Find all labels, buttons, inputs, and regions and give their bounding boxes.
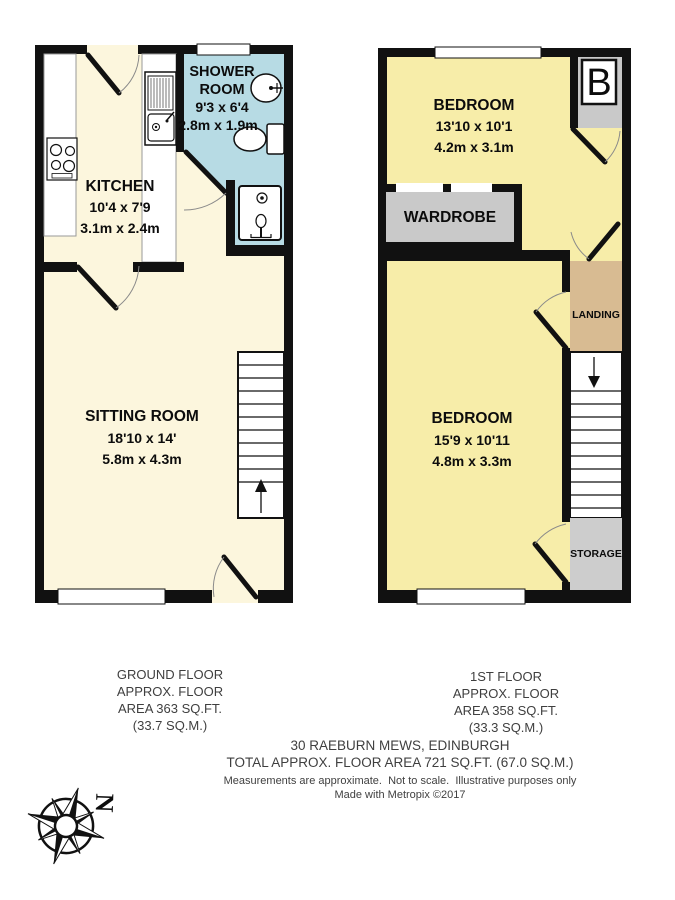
kitchen-size-metric: 3.1m x 2.4m bbox=[80, 220, 159, 236]
bedroom-front-size-metric: 4.2m x 3.1m bbox=[434, 139, 513, 155]
ground-floor-note: GROUND FLOOR APPROX. FLOOR AREA 363 SQ.F… bbox=[70, 666, 270, 734]
ground-floor-note-line4: (33.7 SQ.M.) bbox=[70, 717, 270, 734]
bedroom-back-window bbox=[417, 589, 525, 604]
first-floor-note-line3: AREA 358 SQ.FT. bbox=[406, 702, 606, 719]
first-floor-note: 1ST FLOOR APPROX. FLOOR AREA 358 SQ.FT. … bbox=[406, 668, 606, 736]
disclaimer-text: Measurements are approximate. Not to sca… bbox=[125, 774, 675, 788]
stairs-down bbox=[570, 352, 622, 518]
kitchen-name: KITCHEN bbox=[86, 178, 155, 195]
landing-label: LANDING bbox=[572, 309, 620, 321]
kitchen-wall-right bbox=[133, 262, 184, 272]
kitchen-shower-wall bbox=[176, 54, 184, 152]
shower-tray-icon bbox=[239, 186, 281, 240]
shower-tray-wall bbox=[226, 180, 235, 245]
wardrobe: WARDROBE bbox=[378, 183, 522, 250]
bedroom-back-size-metric: 4.8m x 3.3m bbox=[432, 453, 511, 469]
kitchen-sink-icon bbox=[145, 72, 176, 145]
sitting-room-size-imperial: 18'10 x 14' bbox=[108, 430, 177, 446]
landing-wall-lower bbox=[562, 348, 570, 522]
bedroom-back-name: BEDROOM bbox=[432, 410, 513, 427]
total-floor-area: TOTAL APPROX. FLOOR AREA 721 SQ.FT. (67.… bbox=[125, 754, 675, 771]
ground-floor-plan: SHOWER ROOM 9'3 x 6'4 2.8m x 1.9m KITCHE… bbox=[35, 44, 293, 604]
hob-icon bbox=[47, 138, 77, 180]
first-floor-note-line2: APPROX. FLOOR bbox=[406, 685, 606, 702]
credit-text: Made with Metropix ©2017 bbox=[125, 788, 675, 802]
north-label: N bbox=[90, 793, 120, 813]
boiler-wall bbox=[570, 57, 578, 128]
storage-label: STORAGE bbox=[570, 548, 622, 560]
stairs-up bbox=[238, 352, 284, 518]
kitchen-label: KITCHEN 10'4 x 7'9 3.1m x 2.4m bbox=[80, 178, 159, 236]
first-floor-plan: B WARDROBE LANDING bbox=[378, 47, 631, 604]
compass-rose: N bbox=[16, 776, 120, 877]
kitchen-wall-left bbox=[44, 262, 77, 272]
entrance-door-opening bbox=[87, 45, 138, 54]
shower-room-name-line2: ROOM bbox=[199, 82, 244, 98]
shower-room-window bbox=[197, 44, 250, 55]
property-address: 30 RAEBURN MEWS, EDINBURGH bbox=[125, 737, 675, 754]
bedroom-back-label: BEDROOM 15'9 x 10'11 4.8m x 3.3m bbox=[432, 410, 513, 469]
first-floor-note-line4: (33.3 SQ.M.) bbox=[406, 719, 606, 736]
bedroom-back-size-imperial: 15'9 x 10'11 bbox=[434, 432, 510, 448]
ground-floor-note-line3: AREA 363 SQ.FT. bbox=[70, 700, 270, 717]
bedroom-front-size-imperial: 13'10 x 10'1 bbox=[436, 118, 513, 134]
floorplan-canvas: SHOWER ROOM 9'3 x 6'4 2.8m x 1.9m KITCHE… bbox=[0, 0, 675, 900]
footer: 30 RAEBURN MEWS, EDINBURGH TOTAL APPROX.… bbox=[125, 737, 675, 802]
kitchen-size-imperial: 10'4 x 7'9 bbox=[89, 199, 150, 215]
ground-floor-note-line2: APPROX. FLOOR bbox=[70, 683, 270, 700]
landing-wall-upper bbox=[562, 261, 570, 292]
first-floor-note-line1: 1ST FLOOR bbox=[406, 668, 606, 685]
sitting-room-name: SITTING ROOM bbox=[85, 408, 199, 425]
wardrobe-door-opening bbox=[451, 183, 492, 192]
bedroom-back-wall bbox=[378, 250, 570, 261]
landing-area bbox=[570, 261, 622, 352]
shower-room-size-metric: 2.8m x 1.9m bbox=[178, 117, 257, 133]
sitting-room-window bbox=[58, 589, 165, 604]
wardrobe-door-opening bbox=[396, 183, 443, 192]
ground-floor-note-line1: GROUND FLOOR bbox=[70, 666, 270, 683]
boiler-icon: B bbox=[582, 60, 616, 104]
bedroom-front-name: BEDROOM bbox=[434, 97, 515, 114]
shower-room-name-line1: SHOWER bbox=[189, 64, 255, 80]
sitting-room-size-metric: 5.8m x 4.3m bbox=[102, 451, 181, 467]
shower-bottom-wall bbox=[226, 245, 284, 256]
shower-room-size-imperial: 9'3 x 6'4 bbox=[195, 99, 249, 115]
bedroom-front-window bbox=[435, 47, 541, 58]
bedroom-front-label: BEDROOM 13'10 x 10'1 4.2m x 3.1m bbox=[434, 97, 515, 155]
wardrobe-label: WARDROBE bbox=[404, 209, 496, 226]
boiler-letter: B bbox=[586, 62, 611, 104]
